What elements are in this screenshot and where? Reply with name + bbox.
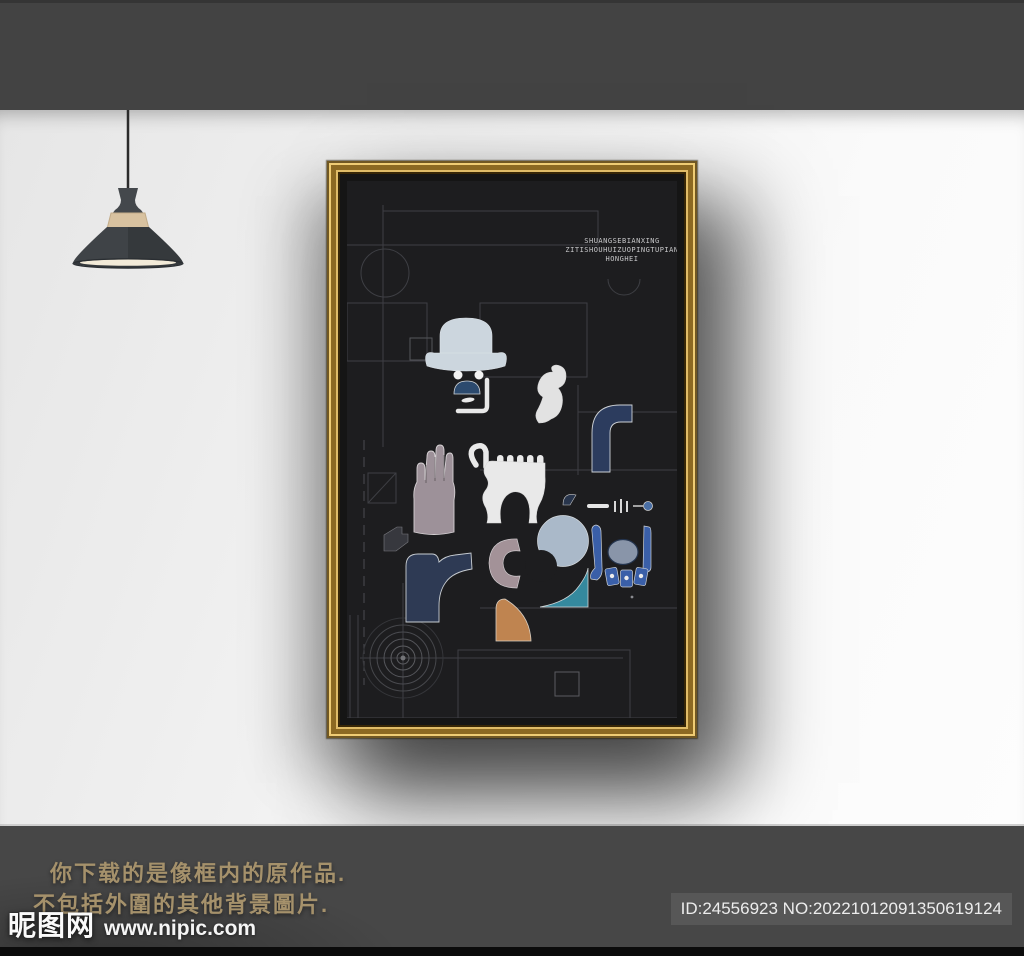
left-eye-shape — [454, 371, 463, 380]
watermark-row: 昵图网 www.nipic.com — [8, 904, 256, 944]
bottom-strip — [0, 947, 1024, 956]
picture-frame: SHUANGSEBIANXING ZITISHOUHUIZUOPINGTUPIA… — [327, 161, 697, 738]
frame-mat: SHUANGSEBIANXING ZITISHOUHUIZUOPINGTUPIA… — [340, 174, 684, 725]
lamp-wood-band — [107, 213, 149, 229]
poster-title-line-2: ZITISHOUHUIZUOPINGTUPIAN — [565, 246, 677, 254]
image-id-badge: ID:24556923 NO:20221012091350619124 — [671, 893, 1012, 925]
footer-bar: 你下载的是像框内的原作品. 不包括外圍的其他背景圖片. 昵图网 www.nipi… — [0, 826, 1024, 956]
right-eye-shape — [475, 371, 484, 380]
notice-line-1: 你下载的是像框内的原作品. — [50, 858, 346, 889]
lamp-shade-shading — [128, 227, 183, 263]
poster-title-line-3: HONGHEI — [605, 255, 638, 263]
nipic-logo: 昵图网 — [8, 904, 95, 944]
tiny-dot — [631, 596, 634, 599]
poster-artwork: SHUANGSEBIANXING ZITISHOUHUIZUOPINGTUPIA… — [347, 181, 677, 718]
site-url: www.nipic.com — [104, 917, 256, 941]
ceiling-bar — [0, 0, 1024, 110]
lamp-neck — [112, 188, 144, 214]
poster-title-line-1: SHUANGSEBIANXING — [584, 237, 659, 245]
pendant-lamp — [60, 110, 195, 270]
wall: SHUANGSEBIANXING ZITISHOUHUIZUOPINGTUPIA… — [0, 110, 1024, 826]
